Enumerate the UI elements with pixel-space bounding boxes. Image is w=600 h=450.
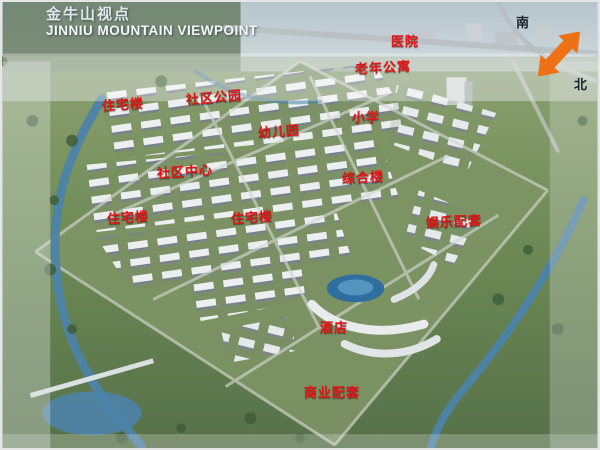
label-residential-2: 住宅楼 bbox=[107, 210, 150, 226]
haze-right bbox=[550, 61, 598, 448]
haze-bottom bbox=[3, 434, 598, 448]
haze-horizon bbox=[3, 54, 598, 102]
page-title-english: JINNIU MOUNTAIN VIEWPOINT bbox=[46, 23, 258, 39]
label-complex-building: 综合楼 bbox=[342, 170, 385, 185]
central-lake bbox=[327, 275, 384, 303]
label-residential-1: 住宅楼 bbox=[102, 97, 145, 113]
label-community-center: 社区中心 bbox=[157, 163, 214, 180]
page-title-chinese: 金牛山视点 bbox=[46, 6, 258, 23]
aerial-map-image bbox=[2, 2, 598, 448]
compass: 南 北 bbox=[516, 8, 594, 100]
label-primary-school: 小学 bbox=[352, 111, 380, 124]
page-title: 金牛山视点 JINNIU MOUNTAIN VIEWPOINT bbox=[46, 6, 258, 39]
haze-left bbox=[3, 61, 51, 448]
compass-north-label: 北 bbox=[574, 78, 587, 91]
label-commercial-facilities: 商业配套 bbox=[304, 386, 360, 399]
label-hospital: 医院 bbox=[391, 35, 419, 48]
label-kindergarten: 幼儿园 bbox=[258, 124, 301, 140]
viewpoint-rendering-page: 金牛山视点 JINNIU MOUNTAIN VIEWPOINT 南 北 医院 老… bbox=[0, 0, 600, 450]
label-senior-apartments: 老年公寓 bbox=[355, 60, 412, 76]
label-residential-3: 住宅楼 bbox=[231, 210, 274, 226]
label-hotel: 酒店 bbox=[320, 321, 348, 334]
pond bbox=[42, 392, 141, 436]
label-entertainment-facilities: 娱乐配套 bbox=[426, 214, 483, 230]
